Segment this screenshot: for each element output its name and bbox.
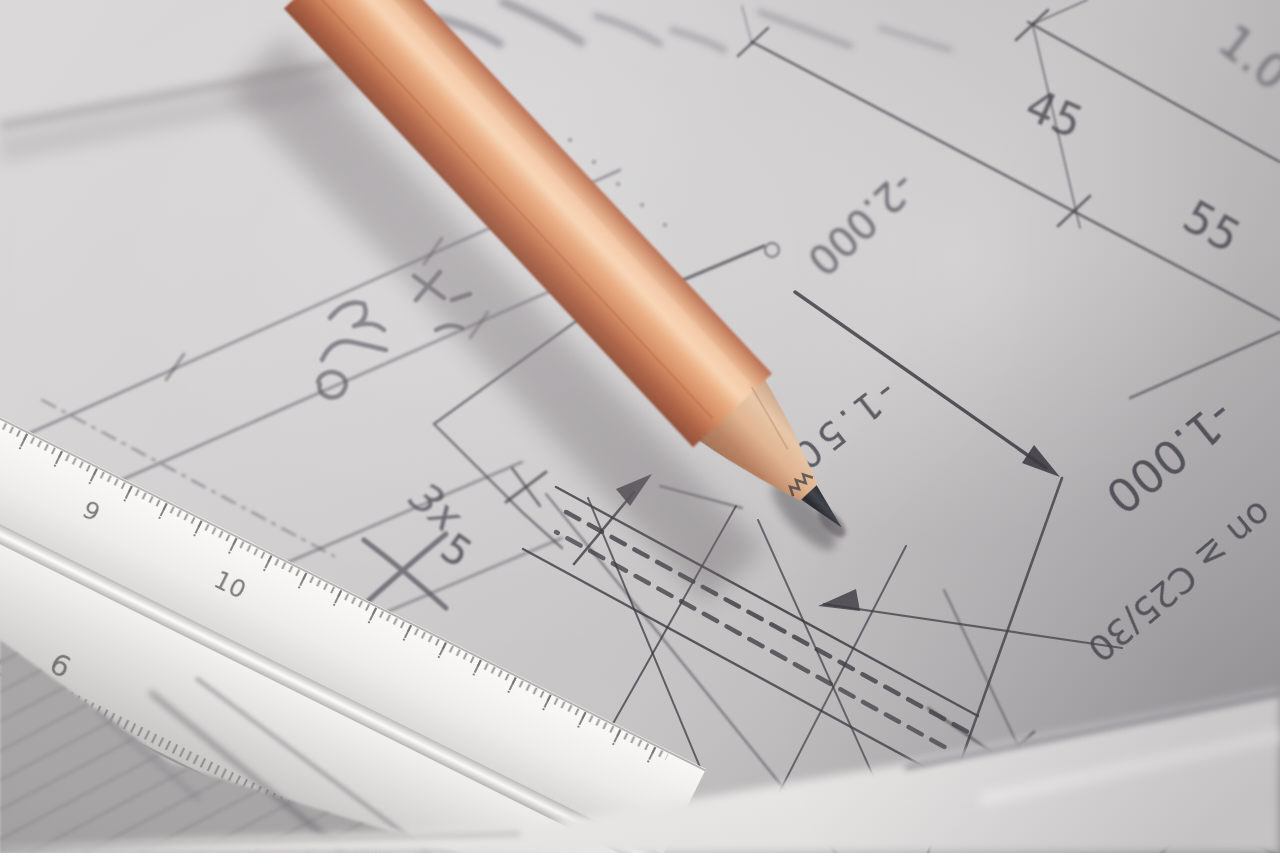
blueprint-photo-svg: 1.0 45 55 -2.000 -1.500 -1.000 on ≥ C25/…	[0, 0, 1280, 853]
vignette-overlay	[0, 0, 1280, 853]
corner-shade	[0, 0, 1280, 853]
blueprint-photo: 1.0 45 55 -2.000 -1.500 -1.000 on ≥ C25/…	[0, 0, 1280, 853]
